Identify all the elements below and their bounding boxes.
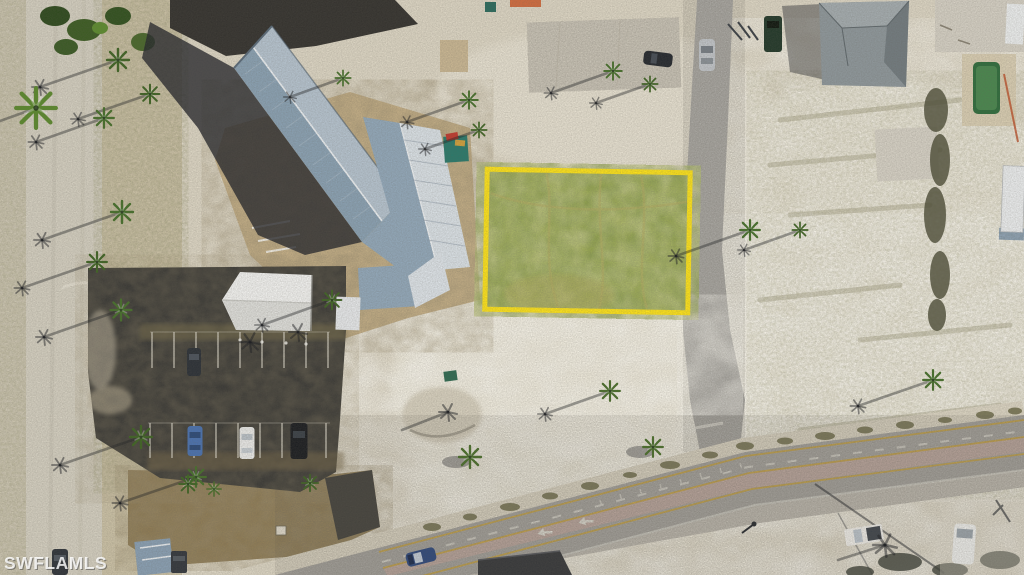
aerial-photo-frame: SWFLAMLS SWFLAMLS — [0, 0, 1024, 575]
watermark: SWFLAMLS — [4, 553, 107, 573]
photo-grain — [0, 0, 1024, 575]
aerial-photograph: SWFLAMLS SWFLAMLS — [0, 0, 1024, 575]
